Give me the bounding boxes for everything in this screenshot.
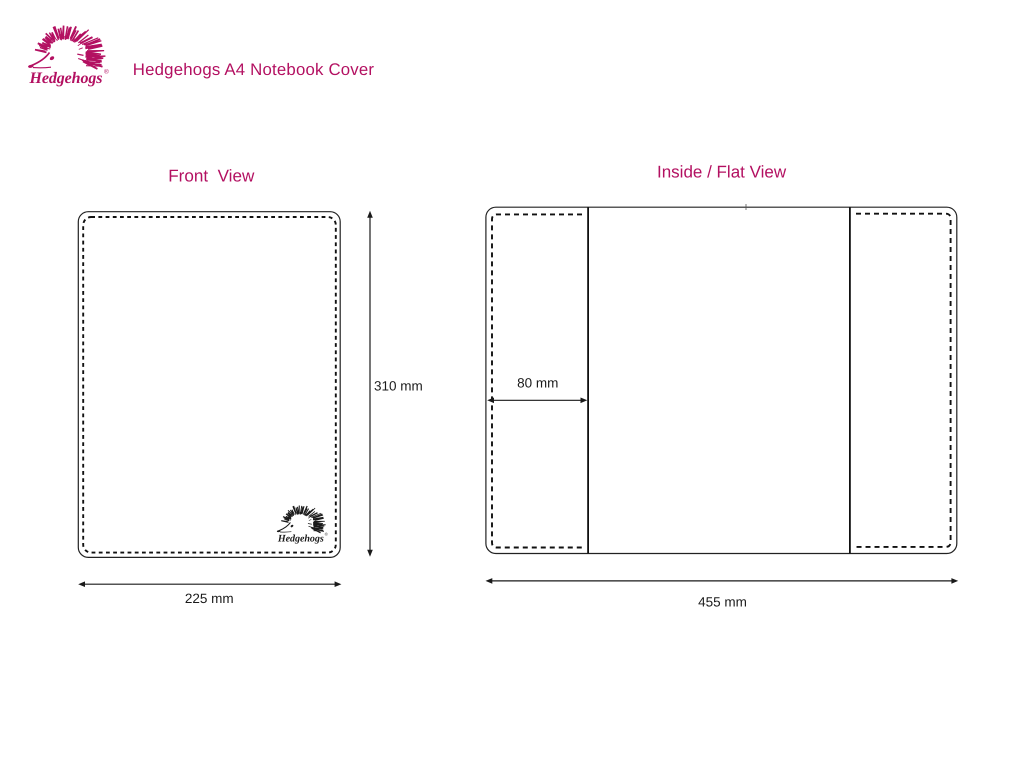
svg-text:455 mm: 455 mm [698,595,747,610]
svg-text:80 mm: 80 mm [517,376,558,391]
svg-text:Inside / Flat View: Inside / Flat View [657,162,787,181]
svg-text:Front View: Front View [168,167,255,186]
svg-text:Hedgehogs A4 Notebook Cover: Hedgehogs A4 Notebook Cover [133,60,375,79]
svg-text:310 mm: 310 mm [374,379,423,394]
svg-text:225 mm: 225 mm [185,591,234,606]
